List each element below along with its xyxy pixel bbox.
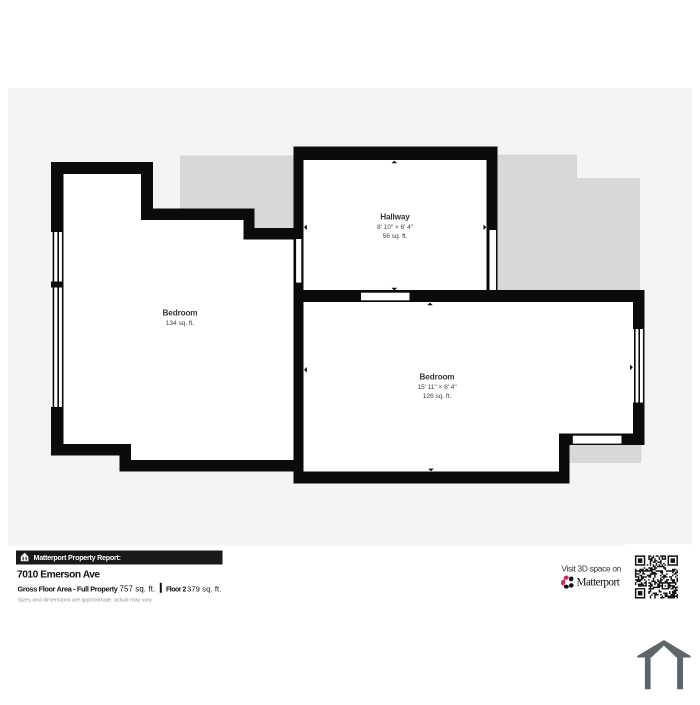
svg-text:Sizes and dimensions are appro: Sizes and dimensions are approximate, ac… (18, 597, 153, 603)
svg-text:56 sq. ft.: 56 sq. ft. (383, 233, 408, 240)
svg-text:Matterport: Matterport (577, 577, 621, 589)
svg-text:134 sq. ft.: 134 sq. ft. (166, 320, 195, 327)
svg-text:Hallway: Hallway (380, 213, 410, 222)
svg-text:Bedroom: Bedroom (163, 309, 198, 318)
svg-text:7010 Emerson Ave: 7010 Emerson Ave (17, 570, 100, 581)
svg-text:Bedroom: Bedroom (420, 373, 455, 382)
svg-text:757 sq. ft.: 757 sq. ft. (120, 584, 156, 593)
svg-text:Floor 2: Floor 2 (166, 586, 186, 593)
svg-text:126 sq. ft.: 126 sq. ft. (423, 393, 452, 400)
svg-text:15' 11" × 8' 4": 15' 11" × 8' 4" (417, 384, 457, 391)
svg-text:Matterport Property Report:: Matterport Property Report: (34, 554, 121, 562)
svg-text:8' 10" × 6' 4": 8' 10" × 6' 4" (377, 224, 414, 231)
svg-text:Gross Floor Area - Full Proper: Gross Floor Area - Full Property (18, 584, 119, 593)
svg-text:Visit 3D space on: Visit 3D space on (561, 563, 621, 573)
svg-text:379 sq. ft.: 379 sq. ft. (187, 584, 221, 593)
